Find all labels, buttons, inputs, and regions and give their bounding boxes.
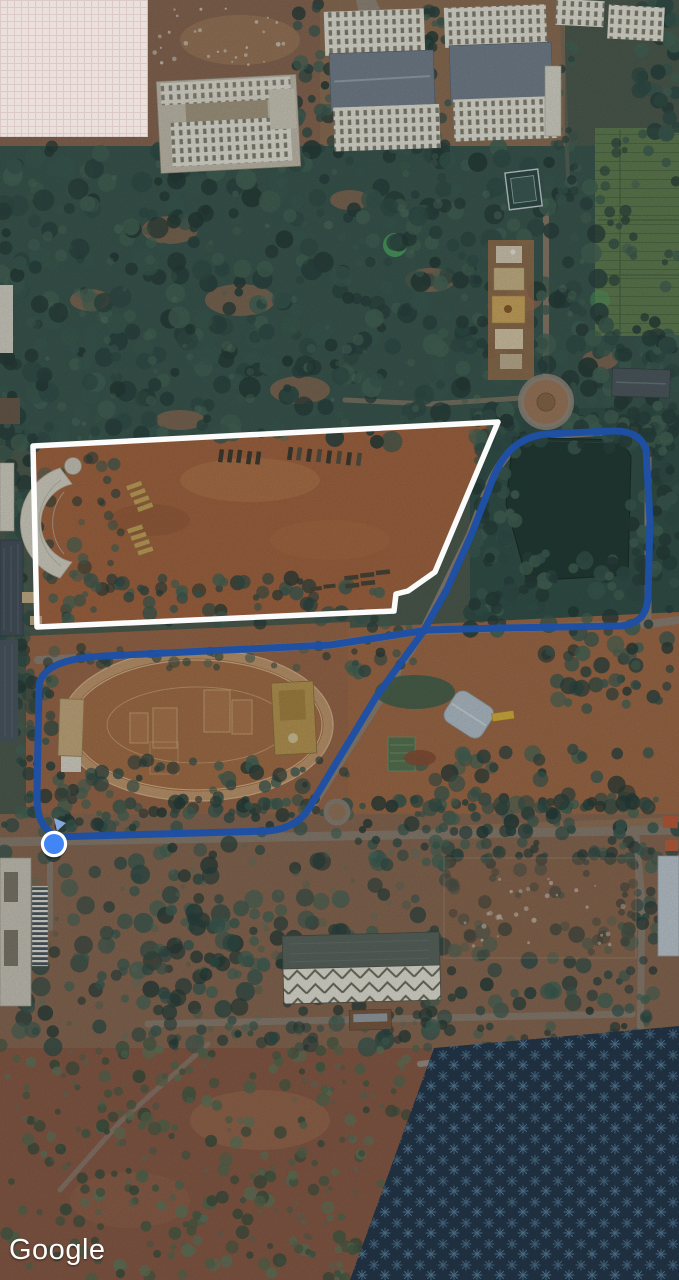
location-dot-core xyxy=(44,834,64,854)
google-watermark: Google xyxy=(9,1234,106,1267)
map-canvas[interactable]: Google xyxy=(0,0,679,1280)
location-dot[interactable] xyxy=(41,831,68,859)
satellite-imagery xyxy=(0,0,679,1280)
grain-texture xyxy=(0,0,679,1280)
unloaded-tile-overlay xyxy=(0,0,148,137)
